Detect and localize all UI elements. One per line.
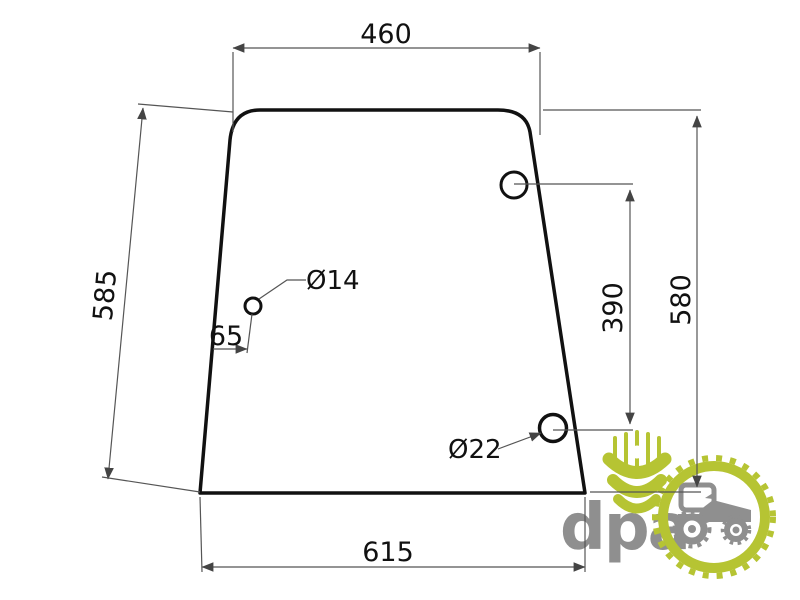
dim-right-height-label: 580 [666,274,697,326]
large-hole-diameter-label: Ø22 [448,435,502,465]
wheat-icon [609,432,665,509]
diagram-svg: dpa [0,0,800,600]
dim-left-height-label: 585 [88,268,123,322]
dim-hole-offset-label: 65 [209,321,243,352]
dim-hole-spacing-label: 390 [598,282,629,334]
drawing-canvas: dpa [0,0,800,600]
dim-top-width-label: 460 [360,19,412,50]
wheat-person-head [631,446,644,459]
small-hole-diameter-label: Ø14 [306,266,360,296]
dim-bottom-width-label: 615 [362,537,414,568]
tractor-icon [675,485,752,547]
dpa-logo: dpa [560,432,773,576]
